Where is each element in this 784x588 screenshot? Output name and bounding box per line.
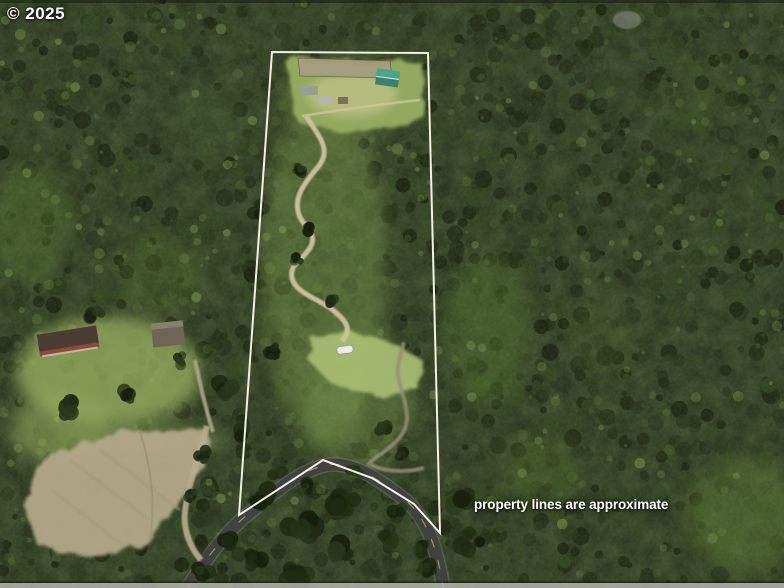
shed-2 [318,96,331,104]
photo-top-edge [0,0,784,3]
photo-bottom-edge [0,583,784,588]
shed-3 [338,97,348,104]
house-gray [151,320,185,347]
barn-green-roof [375,68,400,87]
rock-outcrop [613,11,641,29]
shed-1 [300,86,318,95]
aerial-photo-canvas [0,0,784,588]
aerial-property-photo: © 2025 property lines are approximate [0,0,784,588]
photo-bottom-divider [0,581,784,583]
